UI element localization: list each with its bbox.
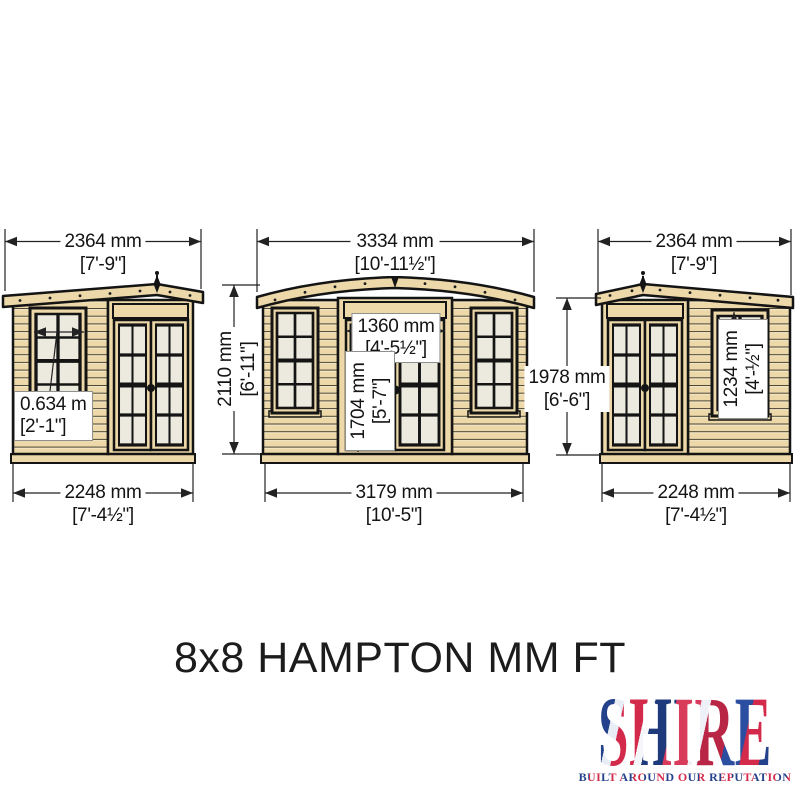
dim-front-ridge-height: 2110 mm [6'-11"] <box>214 327 260 411</box>
dim-value-ft: [6'-11"] <box>237 327 260 411</box>
dim-value-mm: 2364 mm <box>60 230 145 253</box>
base <box>600 454 792 463</box>
double-doors <box>608 320 682 450</box>
dim-value-ft: [7'-9"] <box>651 253 736 276</box>
front-window-right <box>468 308 520 417</box>
base <box>11 454 195 463</box>
dim-front-base-width: 3179 mm [10'-5"] <box>351 481 436 527</box>
transom-panel <box>113 304 188 318</box>
double-doors <box>114 320 188 450</box>
dim-value-ft: [5'-7"] <box>370 357 392 445</box>
dim-right-roof-width: 2364 mm [7'-9"] <box>651 230 736 276</box>
door-knob-icon <box>147 384 155 392</box>
drawing-sheet: 2364 mm [7'-9"] 2248 mm [7'-4½"] 0.634 m… <box>0 0 800 800</box>
dim-value-ft: [7'-4½"] <box>60 504 145 527</box>
dim-front-door-height: 1704 mm [5'-7"] <box>345 351 395 451</box>
dim-left-window-width: 0.634 m [2'-1"] <box>14 391 93 441</box>
shire-logo-tagline: BUILT AROUND OUR REPUTATION <box>578 770 792 785</box>
dim-value-mm: 2248 mm <box>653 481 738 504</box>
dim-value-mm: 1360 mm <box>357 316 434 338</box>
dim-value-ft: [6'-6"] <box>524 389 609 412</box>
front-elevation <box>257 264 534 463</box>
dim-value-mm: 1704 mm <box>348 357 370 445</box>
shire-logo-wordmark: SHIRE <box>598 690 772 774</box>
dim-value-mm: 1234 mm <box>721 325 743 413</box>
dim-value-ft: [10'-11½"] <box>351 253 440 276</box>
dim-value-ft: [4'-½"] <box>743 325 765 413</box>
dim-value-mm: 0.634 m <box>20 394 87 416</box>
dim-front-roof-width: 3334 mm [10'-11½"] <box>351 230 440 276</box>
dim-right-eaves-height: 1978 mm [6'-6"] <box>524 366 609 412</box>
dim-value-ft: [7'-4½"] <box>653 504 738 527</box>
dim-value-mm: 2110 mm <box>214 327 237 411</box>
dim-value-mm: 3334 mm <box>351 230 440 253</box>
shire-logo: SHIRE BUILT AROUND OUR REPUTATION <box>578 690 792 790</box>
transom-panel <box>607 304 683 318</box>
dim-right-base-width: 2248 mm [7'-4½"] <box>653 481 738 527</box>
dim-value-mm: 2364 mm <box>651 230 736 253</box>
dim-value-ft: [7'-9"] <box>60 253 145 276</box>
front-window-left <box>269 308 321 417</box>
base <box>261 454 529 463</box>
dim-left-roof-width: 2364 mm [7'-9"] <box>60 230 145 276</box>
door-knob-icon <box>641 384 649 392</box>
dim-value-mm: 3179 mm <box>351 481 436 504</box>
dim-left-base-width: 2248 mm [7'-4½"] <box>60 481 145 527</box>
dim-value-mm: 1978 mm <box>524 366 609 389</box>
dim-right-window-height: 1234 mm [4'-½"] <box>718 319 768 419</box>
dim-value-ft: [2'-1"] <box>20 416 87 438</box>
dim-value-mm: 2248 mm <box>60 481 145 504</box>
dim-value-ft: [10'-5"] <box>351 504 436 527</box>
